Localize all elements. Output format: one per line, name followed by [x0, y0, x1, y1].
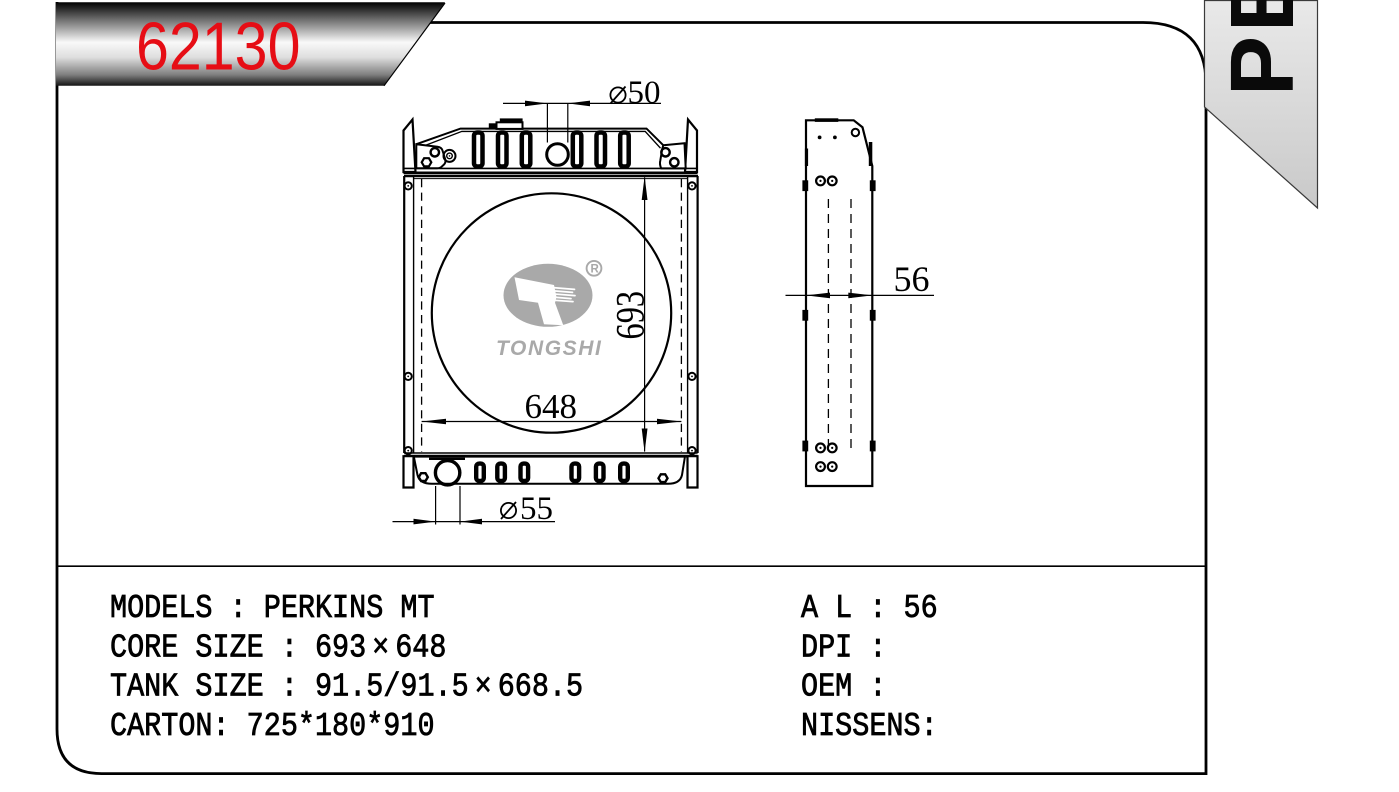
svg-text:TANK SIZE : 91.5/91.5×668.5: TANK SIZE : 91.5/91.5×668.5: [110, 669, 583, 707]
svg-text:NISSENS:: NISSENS:: [801, 708, 938, 746]
svg-text:CARTON: 725*180*910: CARTON: 725*180*910: [110, 708, 435, 746]
svg-text:648: 648: [525, 387, 578, 426]
svg-text:55: 55: [520, 491, 553, 527]
svg-text:56: 56: [894, 259, 930, 299]
svg-text:OEM :: OEM :: [801, 669, 886, 707]
svg-text:CORE SIZE : 693×648: CORE SIZE : 693×648: [110, 629, 446, 667]
svg-text:62130: 62130: [136, 8, 300, 85]
svg-text:DPI :: DPI :: [801, 629, 886, 667]
svg-text:50: 50: [628, 75, 661, 111]
svg-text:TONGSHI: TONGSHI: [496, 337, 603, 360]
svg-text:MODELS : PERKINS MT: MODELS : PERKINS MT: [110, 590, 435, 628]
svg-text:PERKINS MT: PERKINS MT: [1213, 0, 1313, 96]
svg-text:693: 693: [608, 291, 652, 340]
svg-text:A L : 56: A L : 56: [801, 590, 938, 628]
svg-text:R: R: [591, 264, 600, 276]
